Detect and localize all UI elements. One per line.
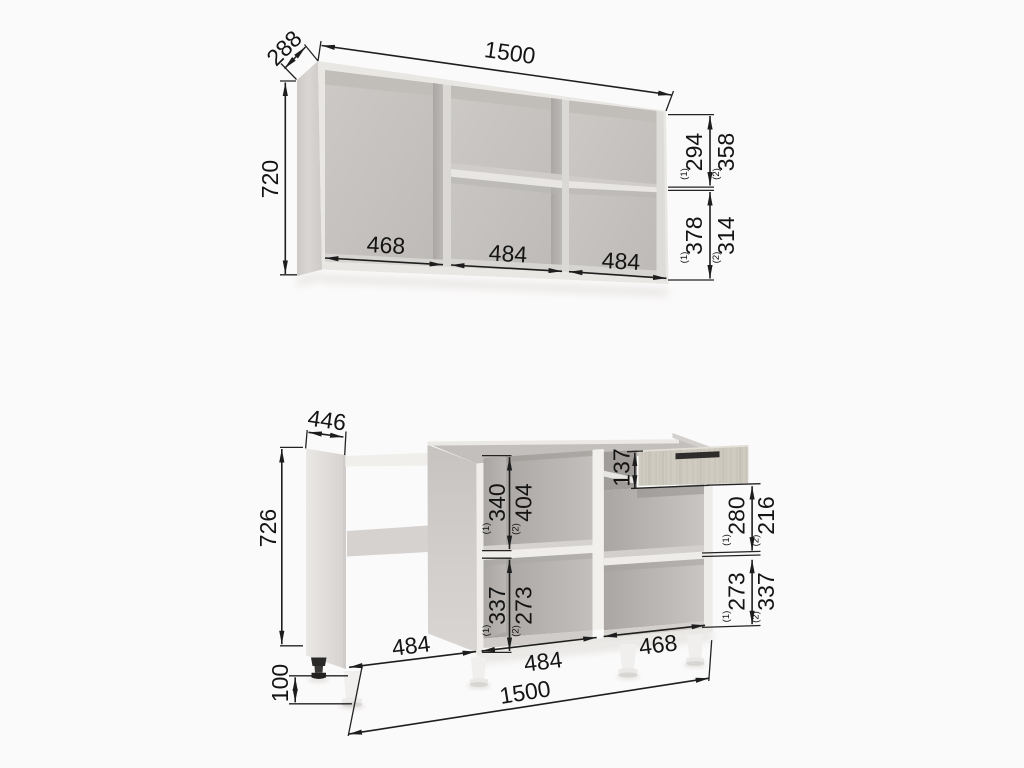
svg-text:378: 378 <box>681 217 707 255</box>
svg-text:(1): (1) <box>679 252 690 264</box>
svg-text:216: 216 <box>753 496 779 534</box>
svg-text:(2): (2) <box>711 252 722 264</box>
svg-text:(1): (1) <box>721 611 732 623</box>
svg-text:(2): (2) <box>511 625 522 637</box>
svg-text:484: 484 <box>601 247 641 275</box>
svg-text:(2): (2) <box>711 168 722 180</box>
svg-text:(1): (1) <box>481 523 492 535</box>
svg-text:404: 404 <box>511 483 537 522</box>
svg-text:137: 137 <box>609 448 635 486</box>
svg-text:294: 294 <box>681 133 707 172</box>
svg-text:314: 314 <box>713 216 739 255</box>
svg-text:484: 484 <box>522 646 563 677</box>
svg-text:(1): (1) <box>679 168 690 180</box>
svg-text:337: 337 <box>753 572 779 610</box>
svg-text:468: 468 <box>366 231 406 259</box>
svg-text:(2): (2) <box>751 611 762 623</box>
svg-text:(2): (2) <box>751 535 762 547</box>
svg-text:484: 484 <box>488 240 528 268</box>
svg-text:280: 280 <box>724 496 750 534</box>
svg-text:(1): (1) <box>721 534 732 546</box>
svg-text:(1): (1) <box>481 625 492 637</box>
svg-text:273: 273 <box>724 572 750 610</box>
svg-text:446: 446 <box>306 405 348 436</box>
svg-text:(2): (2) <box>511 523 522 535</box>
svg-text:720: 720 <box>257 160 283 198</box>
svg-text:273: 273 <box>511 586 537 624</box>
svg-text:340: 340 <box>484 483 510 521</box>
svg-text:726: 726 <box>255 509 281 547</box>
svg-text:358: 358 <box>713 133 739 171</box>
svg-text:337: 337 <box>484 586 510 624</box>
svg-text:100: 100 <box>267 664 293 702</box>
svg-text:484: 484 <box>390 630 431 661</box>
svg-text:468: 468 <box>637 629 678 659</box>
